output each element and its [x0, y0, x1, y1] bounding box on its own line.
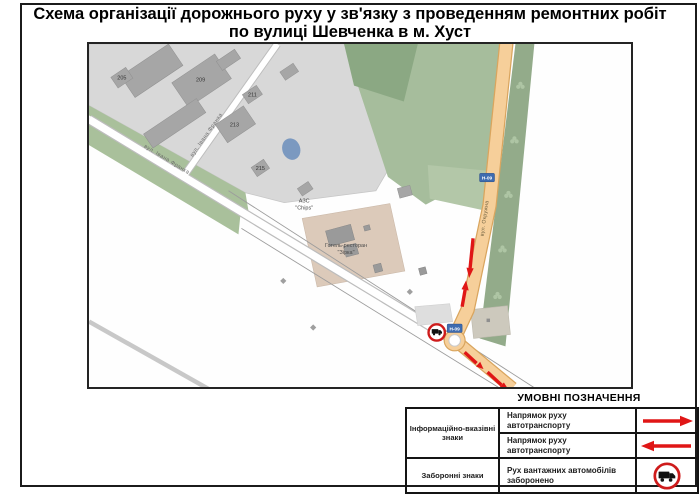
no-trucks-sign-icon: [652, 461, 682, 491]
legend-row1-text: Напрямок руху автотранспорту: [499, 408, 636, 433]
building-215-label: 215: [256, 166, 265, 172]
building-lot: [471, 306, 511, 339]
legend-row1-icon-cell: [636, 408, 698, 433]
red-arrow-left-icon: [640, 440, 694, 452]
legend-row2-text: Напрямок руху автотранспорту: [499, 433, 636, 458]
route-badge-upper-label: Н-09: [482, 176, 493, 182]
legend-title: УМОВНІ ПОЗНАЧЕННЯ: [461, 392, 697, 404]
building-209-label: 209: [196, 78, 205, 84]
legend-row2-icon-cell: [636, 433, 698, 458]
building-211-label: 211: [248, 93, 257, 99]
legend-table: Інформаційно-вказівні знаки Напрямок рух…: [405, 407, 699, 494]
legend-row3-text-line2: заборонено: [507, 476, 631, 486]
route-badge-lower: Н-09: [447, 324, 462, 332]
scheme-page: { "title": { "line1": "Схема організації…: [0, 0, 700, 499]
building-205-label: 205: [117, 76, 126, 82]
legend-group-info-line1: Інформаційно-вказівні: [408, 424, 497, 434]
parking-lot: [415, 304, 453, 326]
map-canvas: Н-09 Н-09 вул. Івана Франка вул. Івана Ф…: [87, 42, 633, 389]
legend-group-info-line2: знаки: [408, 433, 497, 443]
hotel-label-line2: "Зірка": [338, 250, 355, 256]
azs-label-line2: "Chips": [295, 206, 313, 212]
route-badge-lower-label: Н-09: [449, 326, 460, 332]
legend-row3-text: Рух вантажних автомобілів заборонено: [499, 458, 636, 493]
traffic-scheme-map: Н-09 Н-09 вул. Івана Франка вул. Івана Ф…: [89, 44, 631, 387]
legend-group-info-signs: Інформаційно-вказівні знаки: [406, 408, 499, 458]
red-arrow-right-icon: [640, 415, 694, 427]
page-title: Схема організації дорожнього руху у зв'я…: [28, 6, 672, 41]
page-title-line1: Схема організації дорожнього руху у зв'я…: [28, 6, 672, 24]
no-trucks-sign-map: [429, 324, 445, 340]
azs-label-line1: АЗС: [299, 199, 310, 205]
legend-row3-icon-cell: [636, 458, 698, 493]
route-badge-upper: Н-09: [480, 173, 495, 181]
legend-row3-text-line1: Рух вантажних автомобілів: [507, 466, 631, 476]
building-213-label: 213: [230, 122, 239, 128]
legend-group-prohibition-label: Заборонні знаки: [408, 471, 497, 481]
legend-group-prohibition-signs: Заборонні знаки: [406, 458, 499, 493]
lot-building: [487, 319, 490, 322]
roundabout: [449, 335, 461, 346]
page-title-line2: по вулиці Шевченка в м. Хуст: [28, 24, 672, 42]
hotel-label-line1: Готель-ресторан: [325, 243, 367, 249]
